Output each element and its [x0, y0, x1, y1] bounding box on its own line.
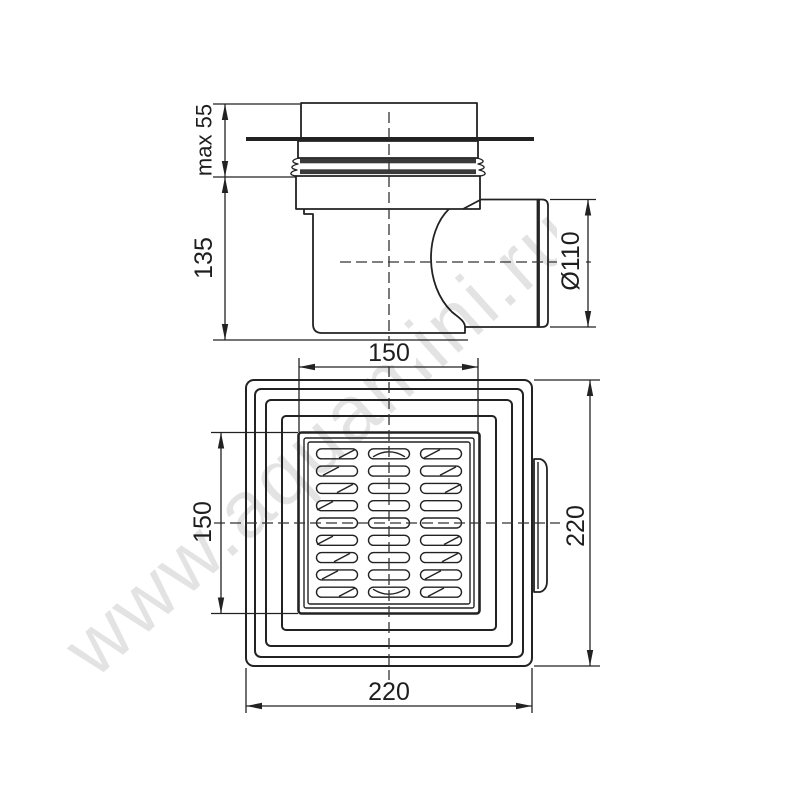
dim-220-height-label: 220 [562, 505, 590, 547]
dim-220-width-label: 220 [368, 678, 410, 706]
shoulder [296, 176, 480, 209]
dim-dia110-label: Ø110 [557, 231, 585, 290]
collar [298, 141, 478, 158]
dim-135-label: 135 [190, 237, 218, 279]
dim-max55-label: max 55 [192, 104, 217, 176]
technical-drawing-floor-drain: www.aquamini.ru [0, 0, 800, 800]
dim-150-height-label: 150 [189, 501, 217, 543]
dim-150-width-label: 150 [368, 339, 410, 367]
watermark-text: www.aquamini.ru [46, 189, 592, 694]
outlet-tab [534, 459, 547, 592]
seal-ribs [291, 158, 485, 176]
drawing-svg: www.aquamini.ru [0, 0, 800, 800]
